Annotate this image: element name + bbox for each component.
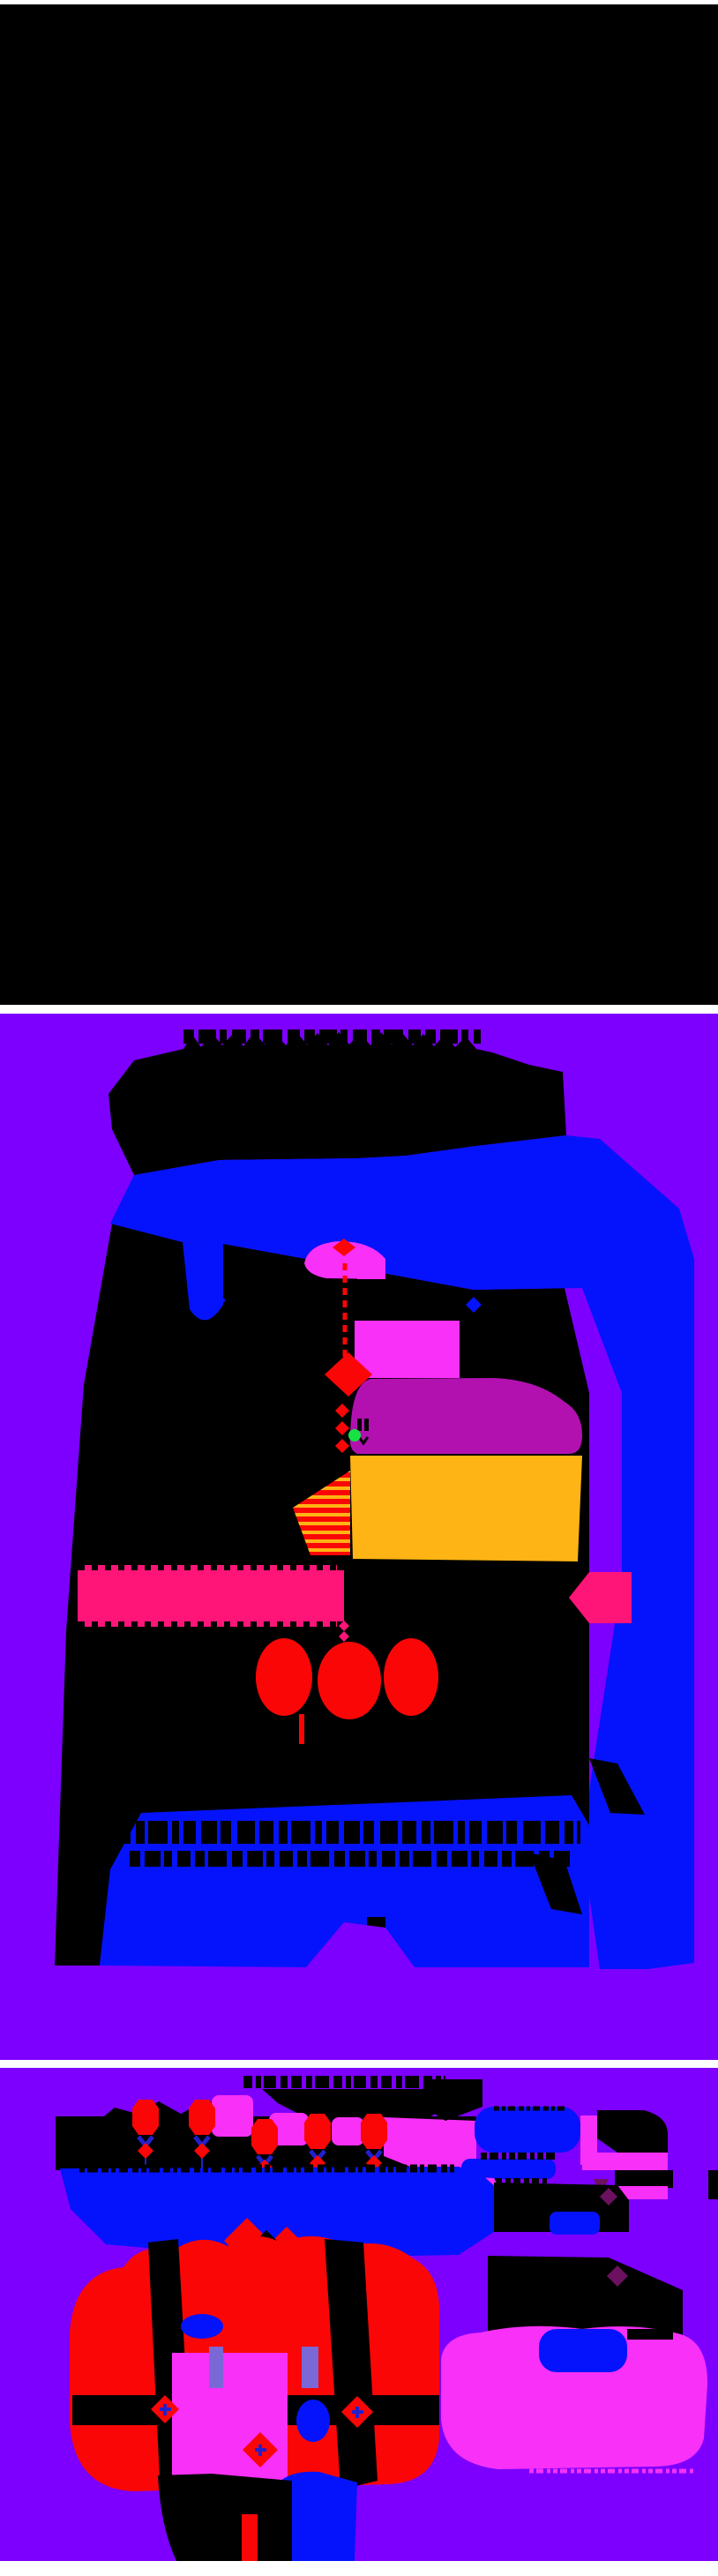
magenta-row-1 (582, 2153, 668, 2170)
blue-pill-button[interactable] (475, 2107, 580, 2153)
green-dot (348, 1429, 361, 1442)
red-drip (299, 1714, 304, 1744)
hero-panel (0, 1014, 718, 2060)
black-banner (0, 4, 718, 1005)
gap-white-strip-1 (0, 1005, 718, 1014)
magenta-blob-lower (355, 1321, 460, 1378)
black-row (615, 2170, 673, 2188)
bottom-white-strip (0, 2561, 718, 2576)
magenta-patch-3 (332, 2117, 364, 2145)
magenta-patch-4 (384, 2117, 476, 2168)
black-sliver-far-right (708, 2170, 718, 2199)
car-mark-2 (364, 1419, 369, 1431)
red-paw-2 (318, 1642, 381, 1719)
blue-blob-topright (539, 2329, 627, 2372)
orange-block (350, 1456, 582, 1561)
buckle-plus-3h (255, 2448, 266, 2452)
buckle-plus-2h (352, 2410, 363, 2414)
footer-panel (0, 2068, 718, 2561)
blue-blob-inside (550, 2212, 600, 2235)
red-stripe (242, 2514, 258, 2561)
lantern-body (361, 2114, 387, 2149)
red-paw-1 (256, 1638, 312, 1716)
black-accent-topright (627, 2329, 673, 2340)
magenta-patch-1 (212, 2095, 253, 2137)
blue-ellipse (296, 2400, 330, 2442)
pink-banner-button[interactable] (78, 1570, 344, 1621)
lantern-body (304, 2114, 331, 2149)
slate-bar-1 (209, 2347, 223, 2388)
gap-white-strip-2 (0, 2060, 718, 2068)
car-mark-1 (357, 1419, 362, 1431)
magenta-sliver (357, 1262, 385, 1279)
red-paw-3 (384, 1638, 438, 1716)
lantern-body (132, 2100, 159, 2135)
lantern-body (189, 2100, 215, 2135)
blue-ellipse-small (181, 2314, 223, 2339)
lantern-body (251, 2119, 278, 2154)
screen (0, 0, 718, 2576)
black-bottom-mass (158, 2474, 292, 2561)
slate-bar-2 (302, 2347, 318, 2388)
buckle-plus-1h (160, 2408, 171, 2411)
